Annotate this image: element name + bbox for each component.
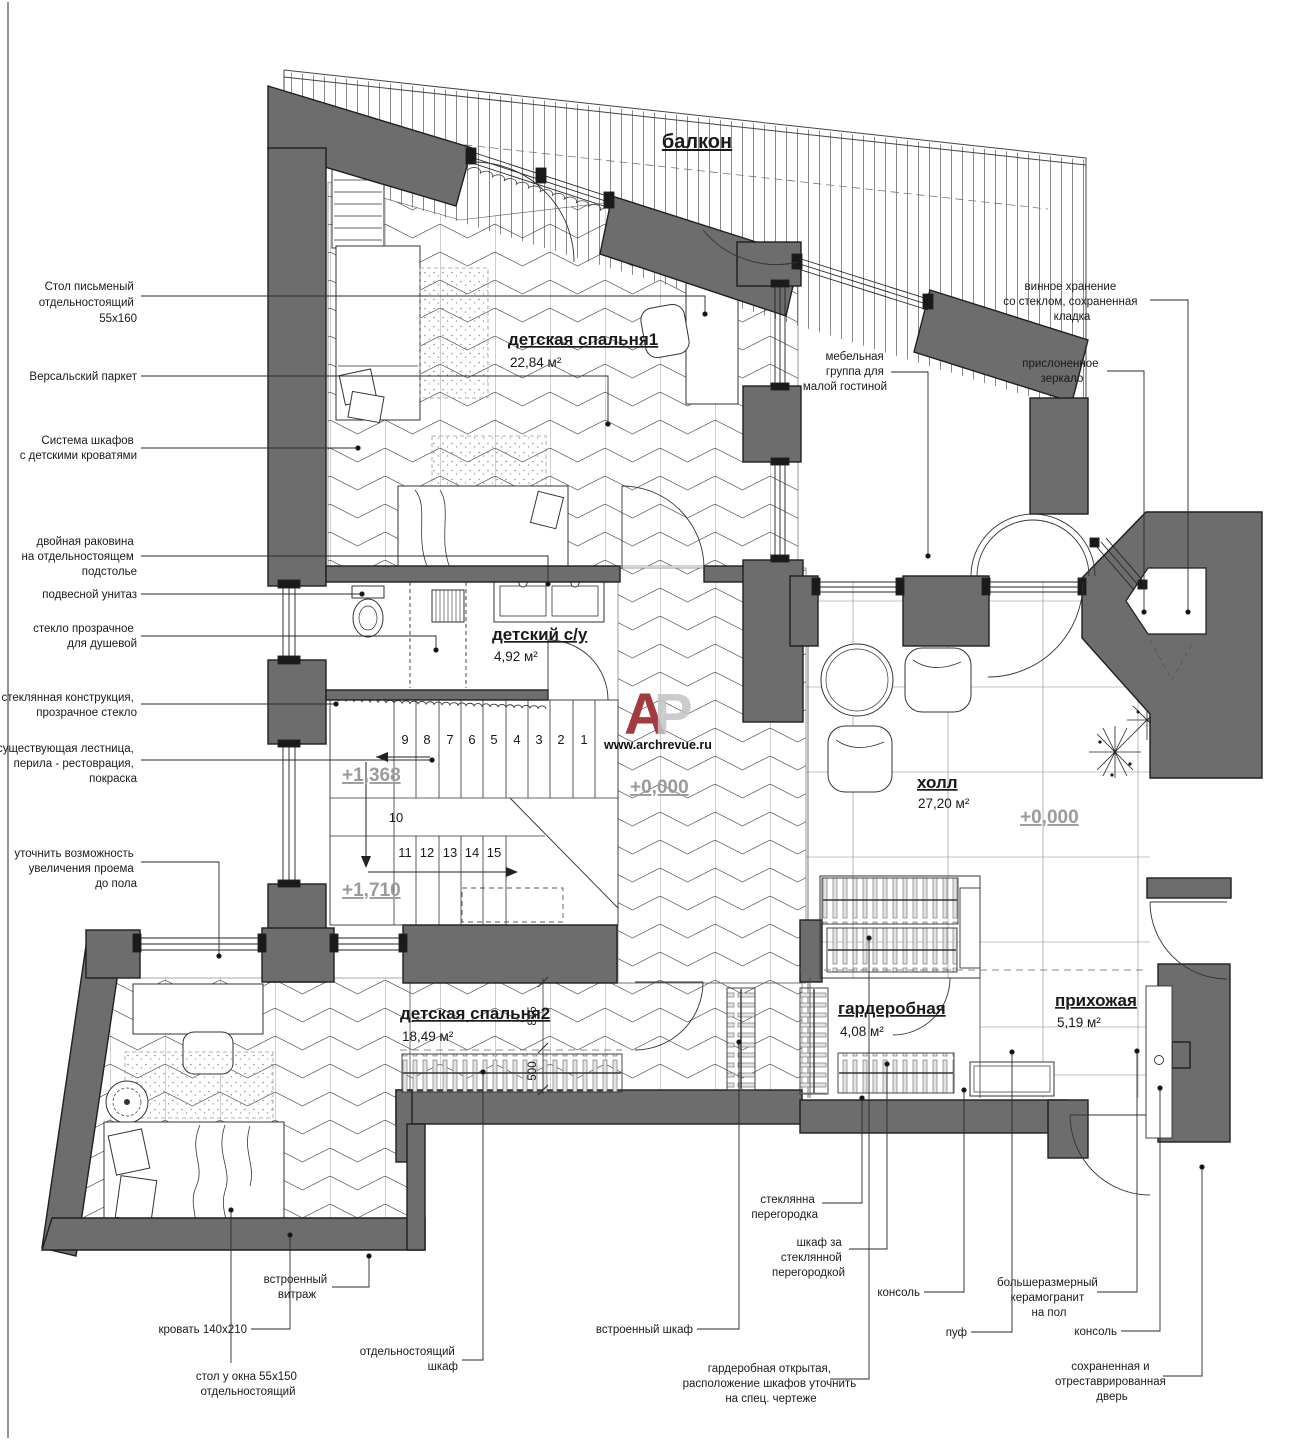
label-wardrobe-behind-glass: шкаф за стеклянной перегородкой — [772, 1237, 845, 1279]
bedroom1-area: 22,84 м² — [510, 355, 562, 370]
wall-entry-bottom — [800, 1100, 1068, 1133]
pillow — [115, 1176, 156, 1223]
pillow — [348, 391, 384, 422]
label-desk-standalone: Стол письменый отдельностоящий 55х160 — [39, 281, 137, 325]
armchair-2 — [828, 726, 892, 792]
bath-area: 4,92 м² — [494, 649, 538, 664]
hall-area: 27,20 м² — [918, 796, 970, 811]
entry-area: 5,19 м² — [1057, 1015, 1101, 1030]
label-restored-door: сохраненная и отреставрированная дверь — [1055, 1361, 1169, 1403]
label-parquet: Версальский паркет — [29, 371, 137, 383]
wardrobe-name: гардеробная — [838, 999, 946, 1018]
dim-500: 500 — [527, 1061, 539, 1080]
window-annex-top — [140, 938, 260, 950]
svg-text:987654321: 987654321 — [401, 732, 587, 747]
label-console-1: консоль — [877, 1287, 920, 1299]
dim-815: 815 — [527, 1006, 539, 1025]
label-closet-system: Система шкафов с детскими кроватями — [20, 435, 137, 462]
label-console-2: консоль — [1074, 1326, 1117, 1338]
logo-site-url: www.archrevue.ru — [603, 738, 712, 752]
floor-plan-sheet: балкон детская спальня1 22,84 м² детский… — [0, 0, 1315, 1440]
level-hall: +0,000 — [1020, 807, 1079, 828]
label-builtin-wardrobe: встроенный шкаф — [596, 1324, 693, 1336]
balcony-label: балкон — [662, 131, 732, 153]
wall-left-upper — [268, 148, 326, 586]
door-swing-hall — [988, 582, 1083, 677]
entry-door-leaf — [1146, 986, 1172, 1138]
label-double-sink: двойная раковина на отдельностоящем подс… — [22, 536, 138, 578]
label-furniture-group: мебельная группа для малой гостиной — [803, 351, 887, 393]
label-shower-glass: стекло прозрачное для душевой — [33, 623, 137, 650]
wardrobe-area: 4,08 м² — [840, 1024, 884, 1039]
label-wall-hung-wc: подвесной унитаз — [42, 589, 137, 601]
bedroom2-area: 18,49 м² — [402, 1029, 454, 1044]
wall-annex-bottom — [42, 1218, 425, 1250]
wardrobe-rail-row — [822, 878, 958, 924]
label-window-desk: стол у окна 55х150 отдельностоящий — [196, 1371, 300, 1398]
label-open-wardrobe: гардеробная открытая, расположение шкафо… — [683, 1363, 860, 1405]
window-bath-left — [283, 588, 295, 658]
level-stair-mid: +1,368 — [342, 765, 401, 786]
floor-plan-canvas: балкон детская спальня1 22,84 м² детский… — [0, 0, 1315, 1440]
wall-bathroom-bottom — [326, 690, 548, 700]
glass-partition-door — [960, 888, 980, 968]
label-glass-partition: стеклянна перегородка — [751, 1194, 818, 1221]
door-bathroom — [548, 640, 608, 700]
wall-bathroom-top — [326, 566, 620, 582]
window-stair-left — [283, 746, 295, 882]
label-existing-stairs: существующая лестница, перила - рестовра… — [0, 743, 138, 785]
rug-bedroom1-a — [420, 268, 488, 398]
label-pouf: пуф — [946, 1327, 967, 1339]
armchair-1 — [905, 648, 971, 712]
stair-landing-number: 10 — [389, 810, 403, 825]
window-bedroom2-top — [336, 938, 401, 950]
desk-by-window — [133, 984, 263, 1034]
label-bed-size: кровать 140х210 — [158, 1324, 247, 1336]
level-stair-low: +1,710 — [342, 880, 401, 901]
label-opening-enlarge: уточнить возможность увеличения проема д… — [14, 848, 137, 890]
label-stained-glass: встроенный витраж — [264, 1274, 331, 1301]
level-corridor: +0,000 — [630, 777, 689, 798]
bedroom1-name: детская спальня1 — [508, 330, 658, 349]
wall-bedroom2-bottom — [396, 1090, 802, 1124]
bath-name: детский с/у — [492, 625, 588, 644]
arch-opening — [971, 514, 1095, 576]
hall-name: холл — [917, 773, 958, 792]
entry-name: прихожая — [1055, 991, 1137, 1010]
window-hall-top-a — [818, 582, 898, 592]
window-hall-top-b — [988, 582, 1080, 592]
label-porcelain-floor: большеразмерный керамогранит на пол — [997, 1277, 1101, 1319]
wall-stairs-bottom — [403, 925, 617, 983]
wc-tank — [352, 586, 384, 598]
label-glass-construction: стеклянная конструкция, прозрачное стекл… — [1, 692, 137, 719]
label-standalone-wardrobe: отдельностоящий шкаф — [360, 1346, 458, 1373]
